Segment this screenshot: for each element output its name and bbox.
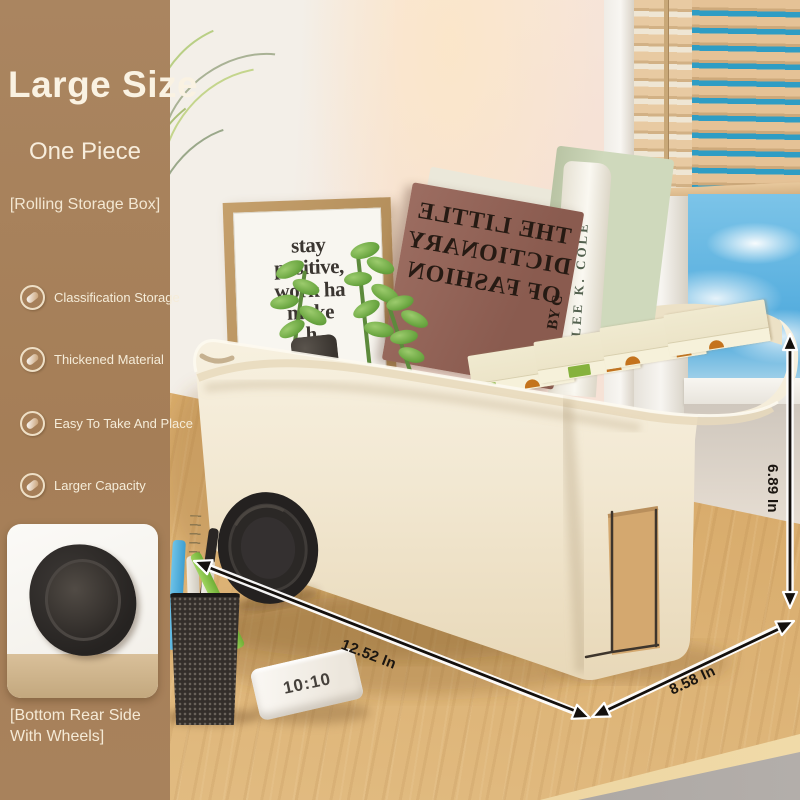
sky-with-clouds (688, 194, 800, 384)
feature-item: Classification Storage (20, 286, 180, 308)
product-image: stay positive, work ha make h LEE K. COL… (0, 0, 800, 800)
info-sidebar: Large Size One Piece [Rolling Storage Bo… (0, 0, 170, 800)
feature-item: Larger Capacity (20, 474, 146, 496)
product-subtitle: One Piece (0, 138, 170, 166)
feature-bullet-icon (20, 411, 45, 436)
inset-floor (7, 654, 158, 698)
clock-time: 10:10 (281, 669, 333, 699)
feature-bullet-icon (20, 285, 45, 310)
mesh-pen-cup (168, 593, 242, 725)
inset-caption: [Bottom Rear Side With Wheels] (10, 706, 160, 748)
feature-item: Thickened Material (20, 348, 164, 370)
feature-item: Easy To Take And Place (20, 412, 193, 434)
product-title: Large Size (8, 64, 198, 106)
height-dimension-label: 6.89 In (764, 464, 781, 513)
product-tagline: [Rolling Storage Box] (0, 196, 170, 214)
feature-bullet-icon (20, 347, 45, 372)
feature-bullet-icon (20, 473, 45, 498)
wheel-icon (24, 539, 141, 661)
wheel-detail-inset (7, 524, 158, 698)
wheel-inner-ring (41, 555, 125, 644)
plant-pot (290, 334, 340, 377)
window-sill (684, 378, 800, 404)
